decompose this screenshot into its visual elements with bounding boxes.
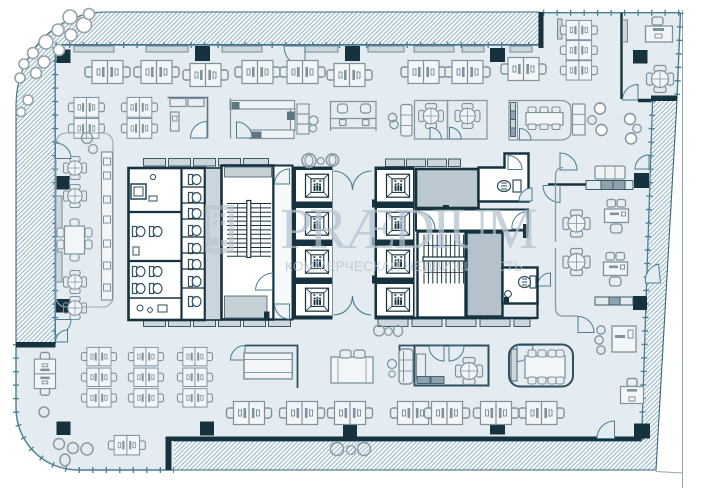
svg-text:PRÆDIUM: PRÆDIUM (280, 196, 538, 261)
svg-text:КОММЕРЧЕСКАЯ НЕДВИЖИМОСТЬ: КОММЕРЧЕСКАЯ НЕДВИЖИМОСТЬ (285, 259, 525, 274)
